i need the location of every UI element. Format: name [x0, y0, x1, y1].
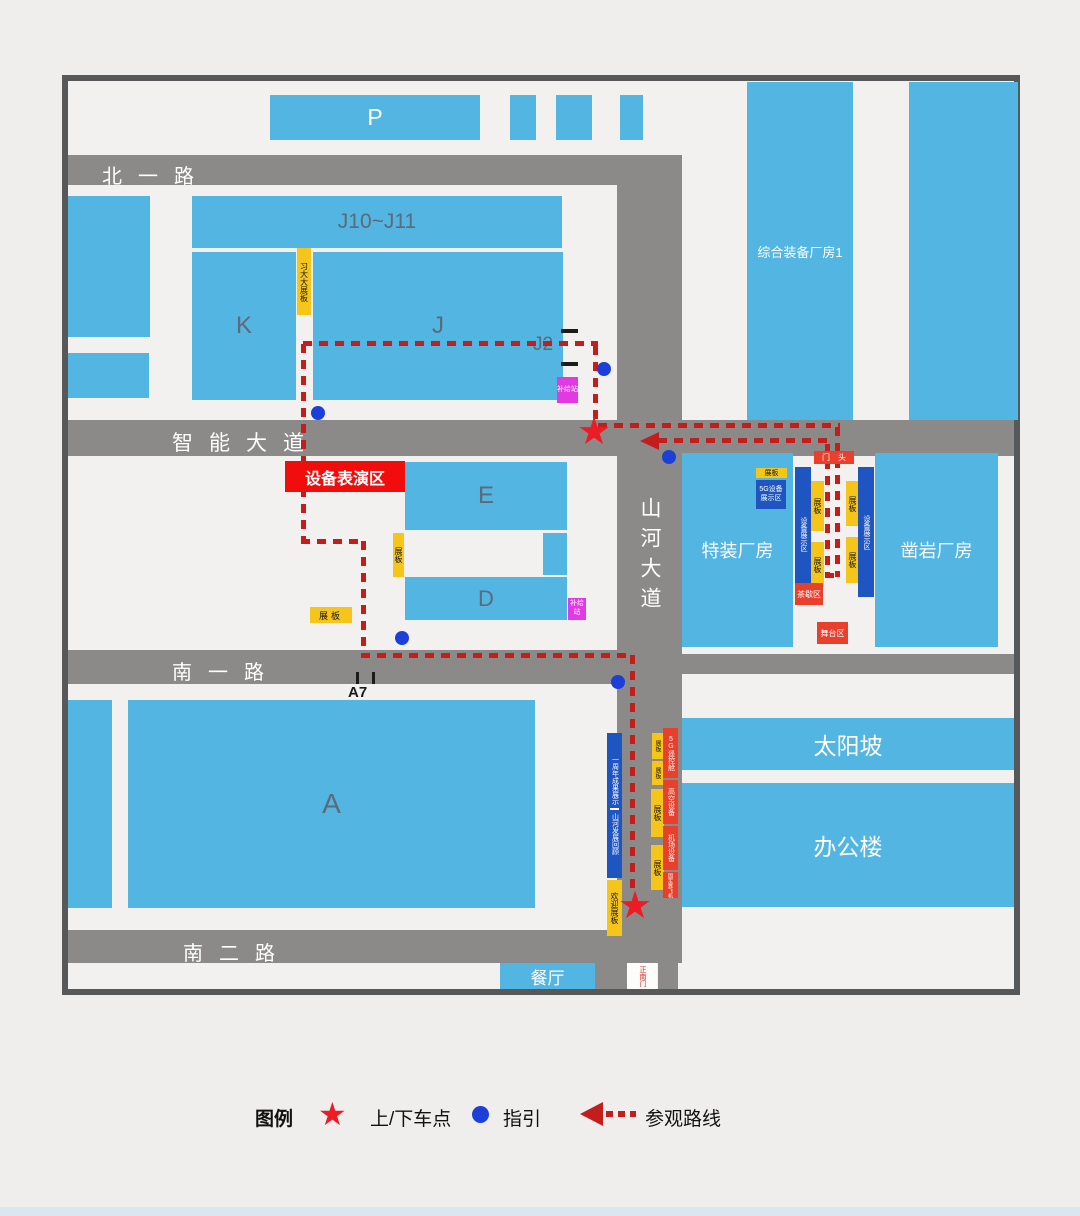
star-stop-avenue: ★: [577, 413, 611, 451]
anniversary-display-text: 一周年成果展示: [610, 756, 620, 805]
legend-star-icon: ★: [318, 1098, 347, 1130]
route-segment-avenue-out: [598, 423, 840, 428]
building-e-d-connector: [543, 533, 567, 575]
display-board-west-2: 展板: [811, 542, 824, 587]
stage-area-label: 舞台区: [817, 622, 848, 644]
road-south-1-east: [682, 654, 1014, 674]
route-segment-corridor-in: [835, 427, 840, 577]
road-stub-left-of-gate: [595, 963, 627, 989]
route-arrow-west: [640, 432, 659, 450]
building-e: E: [405, 462, 567, 530]
legend-stop-label: 上/下车点: [370, 1104, 451, 1131]
guide-dot-2: [597, 362, 611, 376]
display-board-col-s1: 展板: [652, 733, 663, 759]
supply-station-label-2: 补给站: [568, 598, 586, 620]
building-sun-slope: 太阳坡: [682, 718, 1014, 770]
equipment-show-area-label: 设备表演区: [285, 461, 405, 492]
route-segment-jog: [301, 539, 365, 544]
building-p: P: [270, 95, 480, 140]
building-canteen: 餐厅: [500, 963, 595, 989]
route-segment-j-west: [303, 341, 598, 346]
road-label-south-2: 南二路: [183, 937, 291, 966]
route-segment-to-star2: [630, 655, 635, 889]
route-segment-corridor-uturn: [825, 573, 840, 578]
building-integrated-equipment-1: 综合装备厂房1: [747, 82, 853, 420]
j2-tick-bottom: [561, 362, 578, 366]
road-south-2: [68, 930, 682, 963]
building-office: 办公楼: [682, 783, 1014, 907]
building-a-west-strip: [68, 700, 112, 908]
exhibit-aerial-equipment: 高空设备: [663, 780, 678, 824]
route-segment-perf-area: [301, 344, 306, 544]
legend-title: 图例: [255, 1104, 293, 1131]
building-small-3: [620, 95, 643, 140]
gate-head-label: 门头: [814, 451, 854, 464]
display-board-col-s2: 展板: [652, 761, 663, 785]
display-board-label-5g: 展板: [756, 468, 787, 478]
exhibit-5g-remote-cab: 5G遥控舱: [663, 728, 678, 778]
guide-dot-3: [662, 450, 676, 464]
building-rock-drilling-hall: 凿岩厂房: [875, 453, 998, 647]
anniversary-display-strip: 一周年成果展示 山河发展回顾: [607, 733, 622, 878]
guide-dot-5: [611, 675, 625, 689]
j2-tick-top: [561, 329, 578, 333]
legend-dot-icon: [472, 1106, 489, 1123]
building-small-2: [556, 95, 592, 140]
equipment-display-strip-east: 设备展示区: [858, 467, 874, 597]
road-stub-south-gate: [658, 963, 678, 989]
tea-break-area-label: 茶歇区: [795, 583, 823, 605]
south-gate-label: 正南门: [627, 963, 657, 989]
building-j10-j11: J10~J11: [192, 196, 562, 248]
guide-dot-4: [395, 631, 409, 645]
guide-dot-1: [311, 406, 325, 420]
building-small-1: [510, 95, 536, 140]
factory-tour-map-page: 北一路 智能大道 山河大道 南一路 南二路 P J10~J11 K J J2 习…: [0, 0, 1080, 1216]
star-stop-south: ★: [618, 887, 652, 925]
building-k: K: [192, 252, 296, 400]
supply-station-label-1: 补给站: [557, 377, 578, 403]
gate-a7-label: A7: [348, 684, 367, 701]
display-board-label-ed: 展板: [393, 533, 404, 577]
building-integrated-equipment-2: [909, 82, 1018, 420]
route-segment-to-south1: [361, 541, 366, 658]
equipment-display-strip-west: 设备展示区: [795, 467, 811, 601]
legend-route-arrow-icon: [580, 1102, 603, 1126]
a7-tick-left: [356, 672, 359, 684]
exhibit-airport-equipment: 机场设备: [663, 826, 678, 870]
development-review-text: 山河发展回顾: [610, 813, 620, 855]
building-west-lower: [68, 353, 149, 398]
exhibit-fixed-wing-aircraft: 固定翼飞机: [663, 872, 678, 898]
legend-guide-label: 指引: [503, 1104, 541, 1131]
legend-route-label: 参观路线: [645, 1104, 721, 1131]
5g-equipment-zone-label: 5G设备展示区: [756, 480, 786, 509]
building-j: J: [313, 252, 563, 400]
route-segment-avenue-back: [658, 438, 830, 443]
page-bottom-strip: [0, 1207, 1080, 1216]
road-label-north-1: 北一路: [102, 160, 210, 189]
road-label-zhineng-avenue: 智能大道: [172, 427, 320, 457]
legend-route-dashes-icon: [606, 1111, 636, 1117]
road-label-south-1: 南一路: [172, 656, 280, 685]
display-board-west-1: 展板: [811, 481, 824, 531]
building-a: A: [128, 700, 535, 908]
a7-tick-right: [372, 672, 375, 684]
road-label-shanhe-avenue: 山河大道: [634, 497, 664, 617]
display-board-label-southwest: 展板: [310, 607, 352, 623]
building-west-upper: [68, 196, 150, 337]
route-segment-south1: [361, 653, 632, 658]
strip-divider: [610, 808, 619, 810]
xi-display-board-label: 习大大展板: [297, 248, 311, 315]
building-d: D: [405, 577, 567, 620]
